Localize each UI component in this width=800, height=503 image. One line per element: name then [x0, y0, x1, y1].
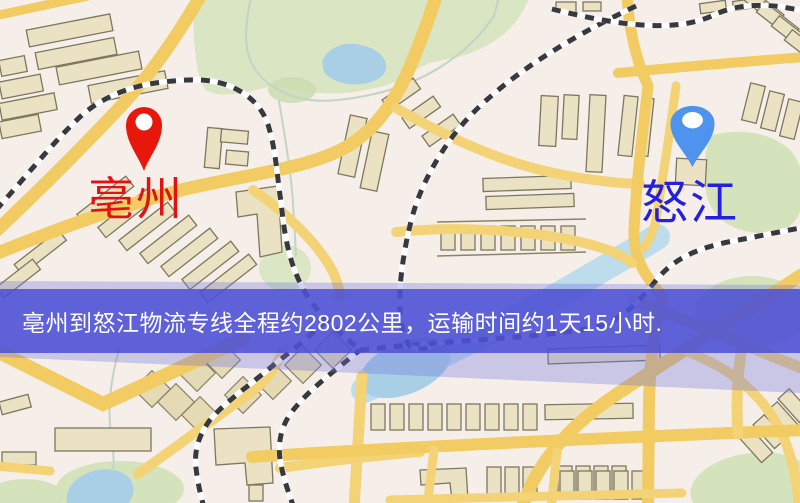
map-canvas[interactable] [0, 0, 800, 503]
destination-pin-icon[interactable] [668, 102, 717, 169]
map-viewport[interactable]: 亳州 怒江 亳州到怒江物流专线全程约2802公里，运输时间约1天15小时. [0, 0, 800, 503]
route-info-banner: 亳州到怒江物流专线全程约2802公里，运输时间约1天15小时. [0, 289, 800, 353]
route-info-text: 亳州到怒江物流专线全程约2802公里，运输时间约1天15小时. [0, 304, 662, 338]
origin-pin-icon[interactable] [124, 103, 164, 173]
destination-label: 怒江 [641, 179, 739, 226]
origin-label: 亳州 [88, 176, 184, 222]
